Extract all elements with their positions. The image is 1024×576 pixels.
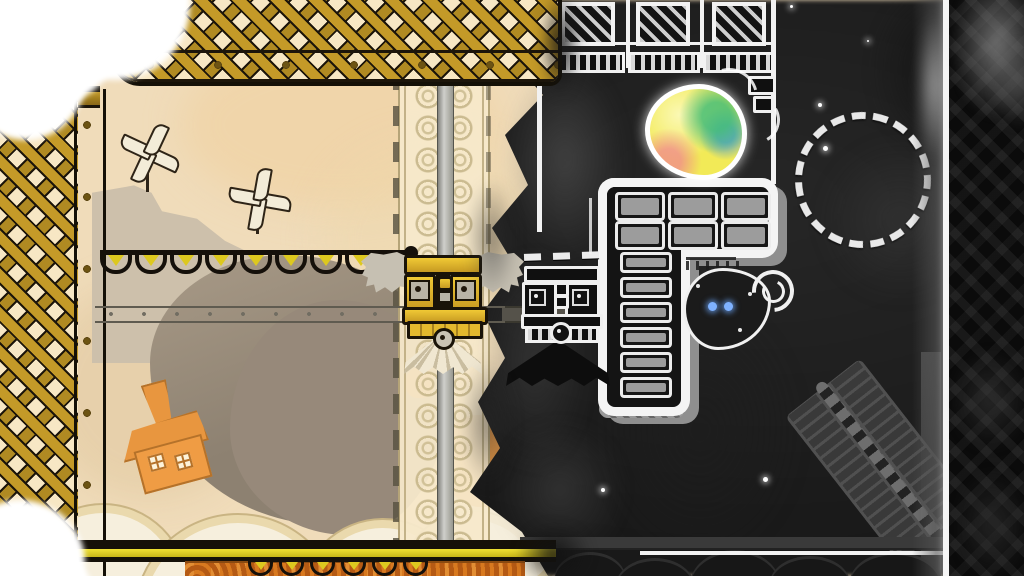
star [601, 488, 605, 492]
rail-hook [372, 562, 397, 576]
brick [615, 221, 665, 250]
fence-side-bar [74, 89, 106, 576]
rail-hook [310, 255, 342, 274]
cart-center-detail [438, 277, 452, 290]
gray-edge-cloud [955, 470, 1024, 576]
chalk-tick-bar [628, 52, 700, 73]
brick [721, 192, 771, 221]
creature-spot [696, 284, 700, 288]
rail-hook [205, 255, 237, 274]
bottom-bar-black [0, 540, 556, 549]
beam-bar [116, 50, 558, 82]
cart-center-detail [438, 291, 452, 303]
brick [620, 277, 672, 298]
chalk-divider [700, 0, 704, 68]
chalk-divider [626, 0, 630, 68]
rail-hook [279, 562, 304, 576]
rail-hook [403, 562, 428, 576]
brick [668, 192, 718, 221]
shadow-cart[interactable] [520, 252, 600, 344]
rail-hook [100, 255, 132, 274]
brick [620, 252, 672, 273]
rail-hook [275, 255, 307, 274]
rail-hook [341, 562, 366, 576]
star [823, 146, 828, 151]
brick [615, 192, 665, 221]
brick [620, 327, 672, 348]
rail-hook [248, 562, 273, 576]
star [763, 477, 768, 482]
creature-eye [724, 302, 733, 311]
rail-hook [135, 255, 167, 274]
cart-center [554, 295, 569, 309]
shadow-creature[interactable] [678, 252, 796, 352]
creature-eye [708, 302, 717, 311]
smoke-wisp [460, 358, 516, 490]
smoke-wisp [466, 178, 518, 300]
rail-hook [240, 255, 272, 274]
star [818, 103, 822, 107]
gray-edge-cloud [950, 350, 1024, 450]
rail-hook [170, 255, 202, 274]
rail-hook [310, 562, 335, 576]
brick [668, 221, 718, 250]
windmill [256, 196, 260, 200]
hatched-panel [636, 2, 690, 46]
star [790, 5, 793, 8]
cart-wheel-dot [557, 329, 561, 333]
brick [620, 302, 672, 323]
brick [721, 221, 771, 250]
bottom-hook-rail [248, 558, 428, 576]
cart-window-dot [577, 294, 581, 298]
cart-window [529, 289, 546, 306]
cart-window [572, 289, 589, 306]
hanging-rod [589, 198, 592, 254]
cart-window-dot [461, 286, 467, 292]
windmill [146, 150, 150, 154]
hatched-panel [712, 2, 766, 46]
star [867, 40, 869, 42]
chalk-bottom-line [640, 551, 945, 555]
brick [620, 352, 672, 373]
cart-window-dot [415, 286, 421, 292]
brick [620, 377, 672, 398]
cart-window-dot [534, 294, 538, 298]
creature-spot [738, 328, 742, 332]
game-viewport[interactable] [0, 0, 1024, 576]
cart-wheel [550, 322, 572, 344]
cart-lid [524, 266, 600, 283]
cart-wheel-dot [440, 335, 445, 340]
